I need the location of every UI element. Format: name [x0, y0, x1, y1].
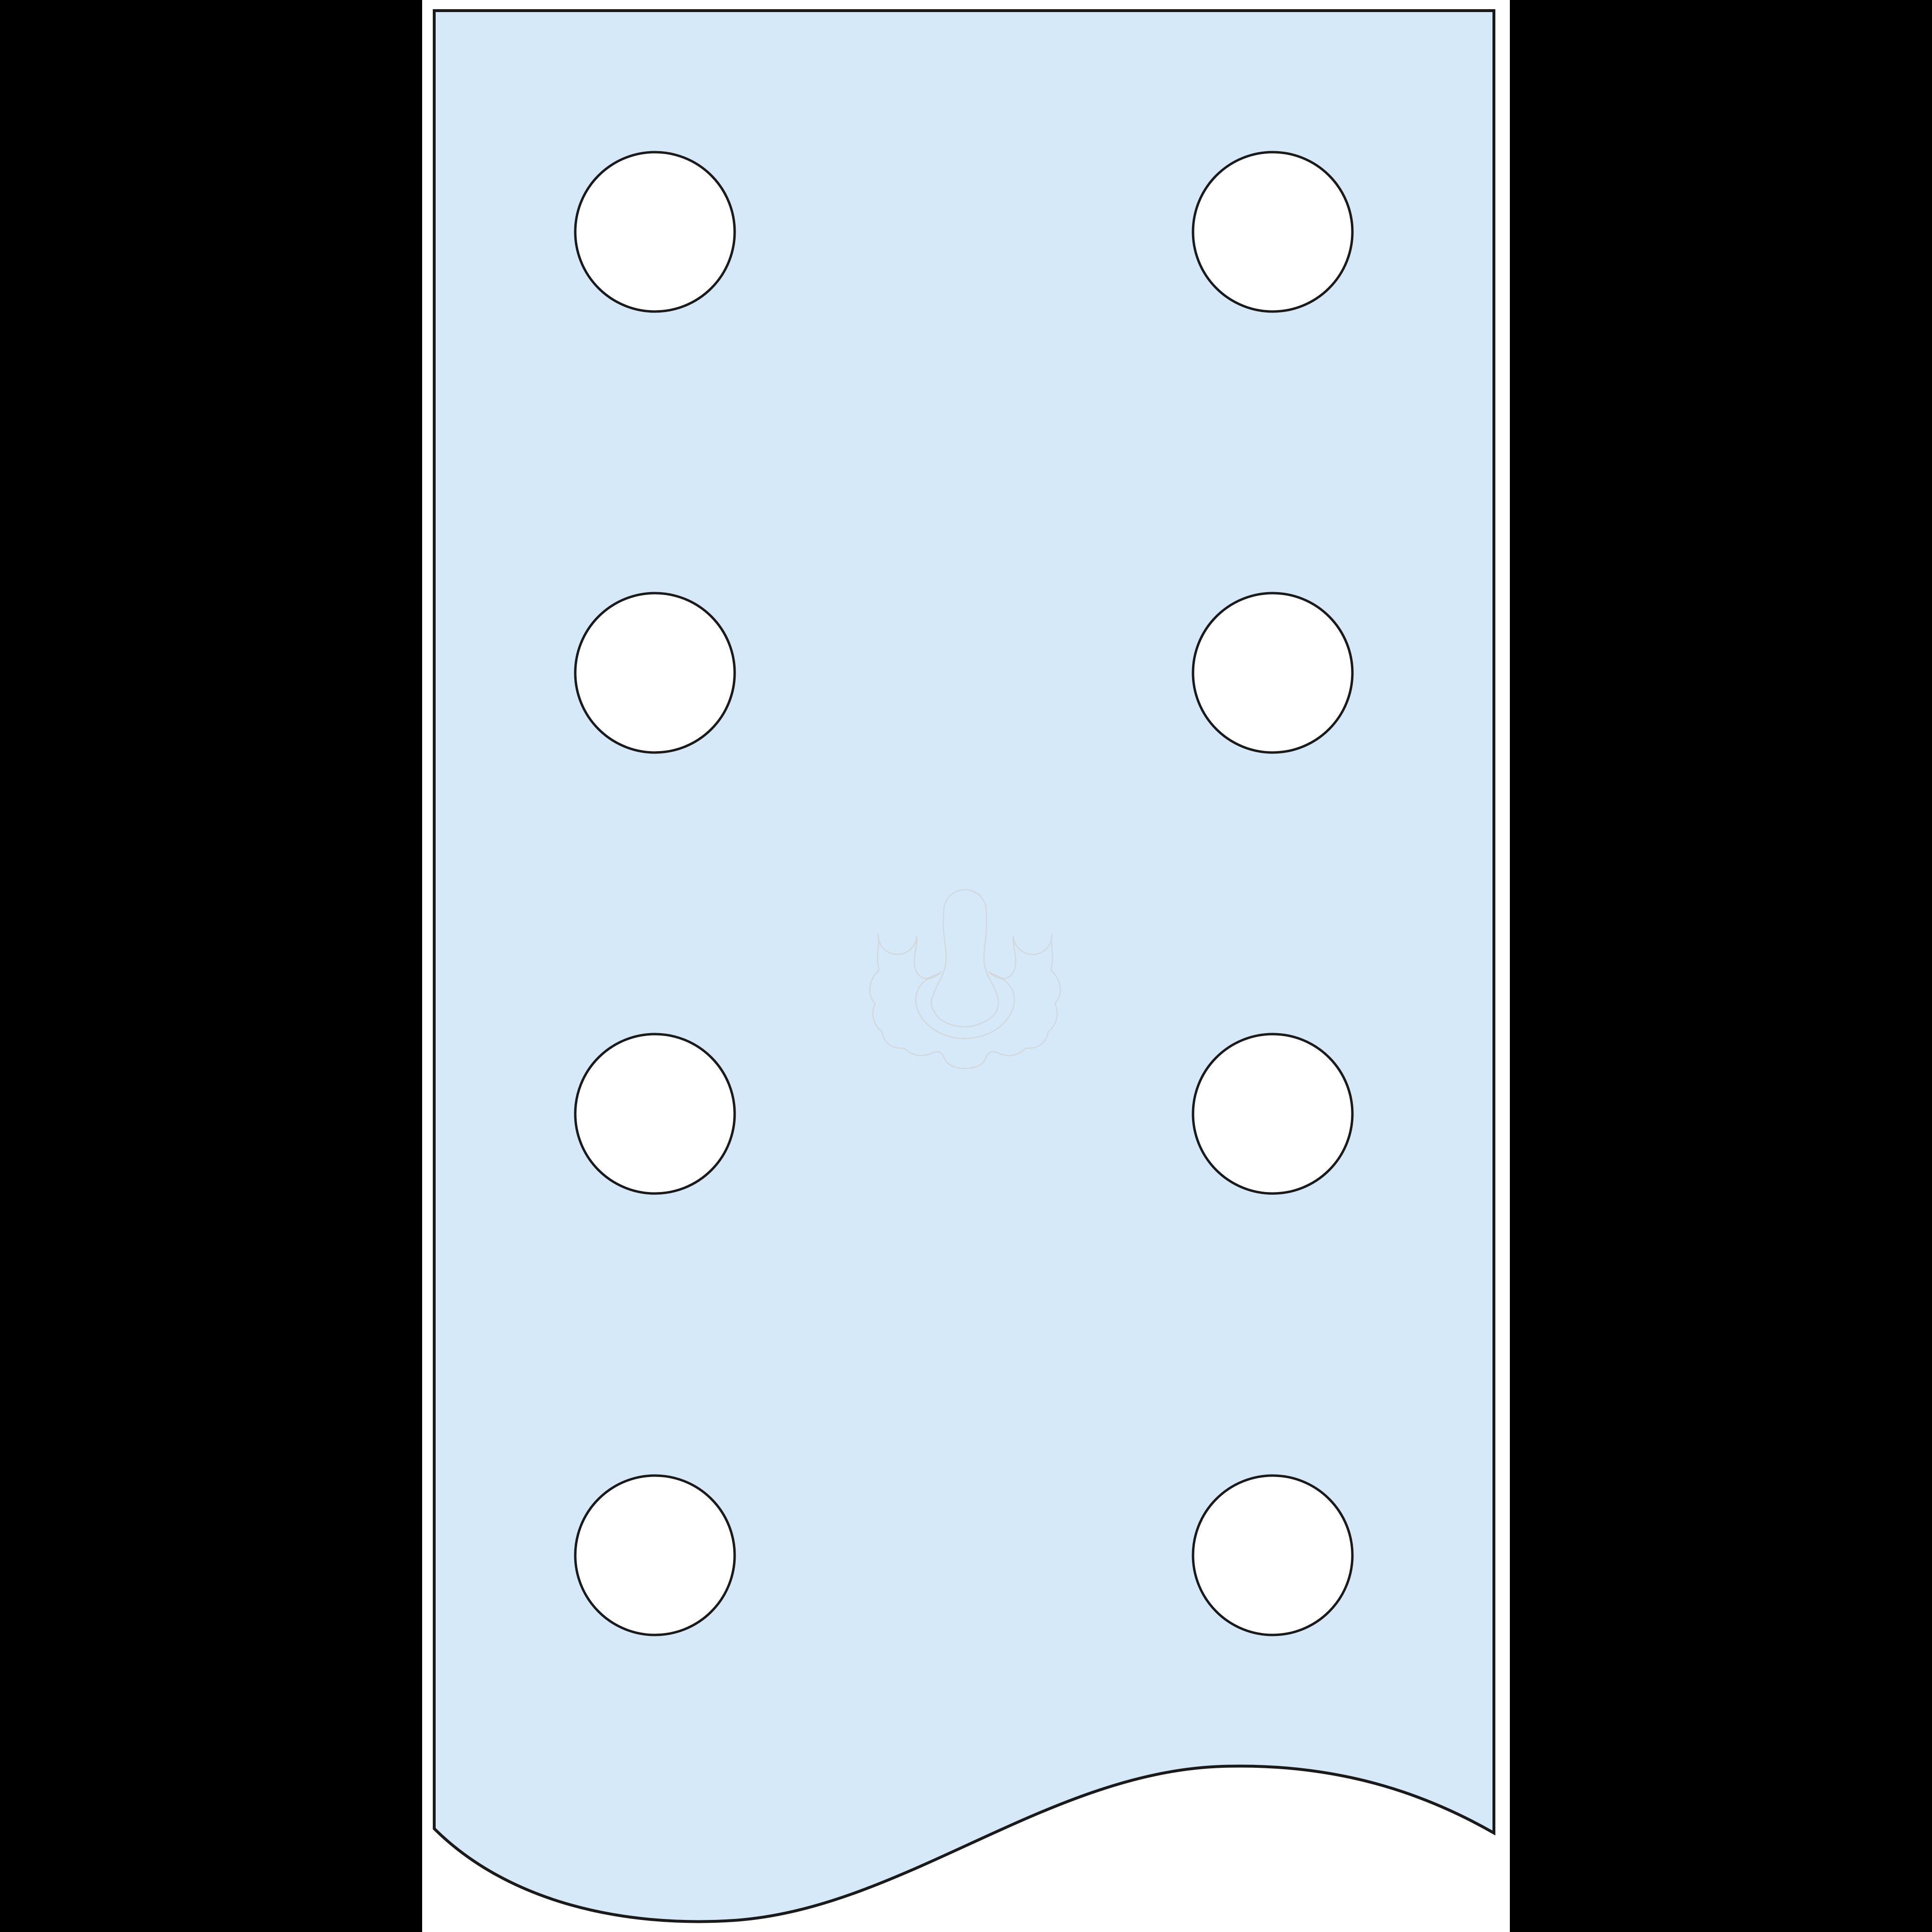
punched-hole: [575, 1476, 735, 1635]
punched-hole: [1193, 1476, 1352, 1635]
catalog-image: [0, 0, 1932, 1932]
punched-hole: [1193, 1034, 1352, 1193]
punched-hole: [575, 152, 735, 312]
punched-hole: [1193, 593, 1352, 753]
punched-hole: [575, 593, 735, 753]
punched-hole: [1193, 152, 1352, 312]
punched-hole: [575, 1034, 735, 1193]
product-illustration: [0, 0, 1932, 1932]
busbar-plate: [434, 11, 1494, 1921]
